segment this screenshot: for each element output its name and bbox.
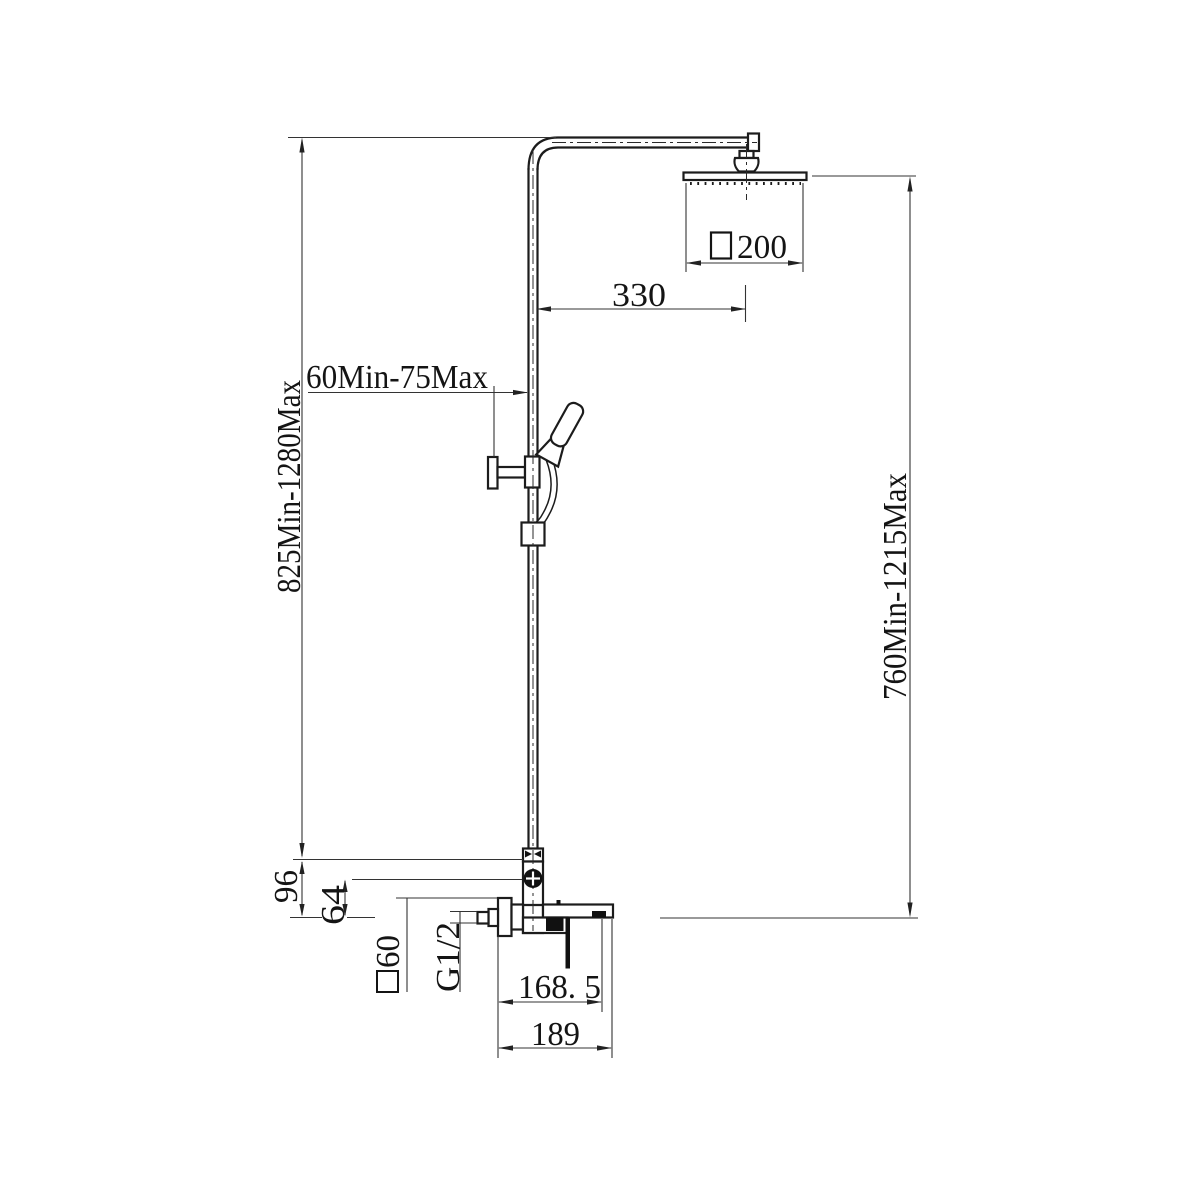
arrowhead — [299, 138, 304, 153]
arrowhead — [597, 1045, 612, 1050]
dim-thread-label: G1/2 — [430, 922, 467, 992]
dim-right-height: 760Min-1215Max — [877, 177, 914, 918]
dim-arm-projection: 330 — [536, 277, 746, 314]
dim-overall-height-label: 825Min-1280Max — [271, 380, 308, 593]
arrowhead — [731, 306, 746, 311]
lever-pivot — [557, 900, 561, 905]
dim-spout-length: 189 — [498, 1016, 612, 1053]
arrowhead — [907, 903, 912, 918]
centerlines — [533, 143, 757, 932]
dim-right-height-label: 760Min-1215Max — [877, 473, 914, 700]
overhead-shower-head — [684, 173, 807, 184]
dim-diverter-to-spout-label: 64 — [315, 885, 352, 925]
wall-bracket-plate — [488, 457, 498, 489]
spout-outlet — [592, 911, 606, 918]
slide-bracket — [488, 457, 540, 489]
pipe-bend-inner — [538, 148, 559, 171]
dim-pipe-to-spout-label: 96 — [268, 870, 305, 903]
arrowhead — [299, 904, 304, 917]
arrowhead — [788, 260, 803, 265]
arrowhead — [686, 260, 701, 265]
hand-shower-handle — [536, 398, 589, 466]
dim-flange-size: 60 — [370, 935, 407, 992]
square-symbol — [377, 971, 398, 992]
dim-flange-size-label: 60 — [370, 935, 407, 968]
arrowhead — [498, 1045, 513, 1050]
arrowhead — [907, 177, 912, 192]
dim-head-size: 200 — [686, 229, 803, 266]
arrowhead — [299, 843, 304, 858]
slider-block — [525, 457, 540, 488]
arrowhead — [513, 390, 528, 395]
hex-nut — [489, 909, 499, 926]
dim-head-size-label: 200 — [737, 229, 787, 266]
arrowhead — [498, 999, 513, 1004]
mixer — [478, 849, 614, 937]
dim-bracket-offset: 60Min-75Max — [306, 359, 528, 396]
shower-system-drawing: 825Min-1280Max 96 64 60 G1/2 — [0, 0, 1200, 1200]
inlet-stub — [478, 912, 489, 924]
dim-bracket-offset-label: 60Min-75Max — [306, 359, 488, 396]
wall-bracket-arm — [498, 467, 526, 478]
dimensions: 825Min-1280Max 96 64 60 G1/2 — [268, 138, 918, 1059]
lever-socket — [546, 918, 564, 932]
flange-neck — [512, 905, 524, 930]
dim-thread: G1/2 — [430, 922, 467, 992]
dim-wall-to-outlet: 168. 5 — [498, 969, 602, 1006]
lever-handle — [566, 918, 571, 969]
head-plate — [684, 173, 807, 181]
dim-spout-length-label: 189 — [531, 1016, 580, 1053]
technical-drawing-canvas: 825Min-1280Max 96 64 60 G1/2 — [0, 0, 1200, 1200]
dim-pipe-to-spout: 96 — [268, 861, 305, 917]
dim-arm-projection-label: 330 — [612, 277, 666, 314]
wall-flange — [498, 898, 512, 936]
square-symbol — [711, 233, 731, 259]
handle-grip — [548, 400, 585, 448]
dim-overall-height: 825Min-1280Max — [271, 138, 308, 859]
dim-wall-to-outlet-label: 168. 5 — [518, 969, 601, 1006]
dim-diverter-to-spout: 64 — [315, 880, 352, 926]
